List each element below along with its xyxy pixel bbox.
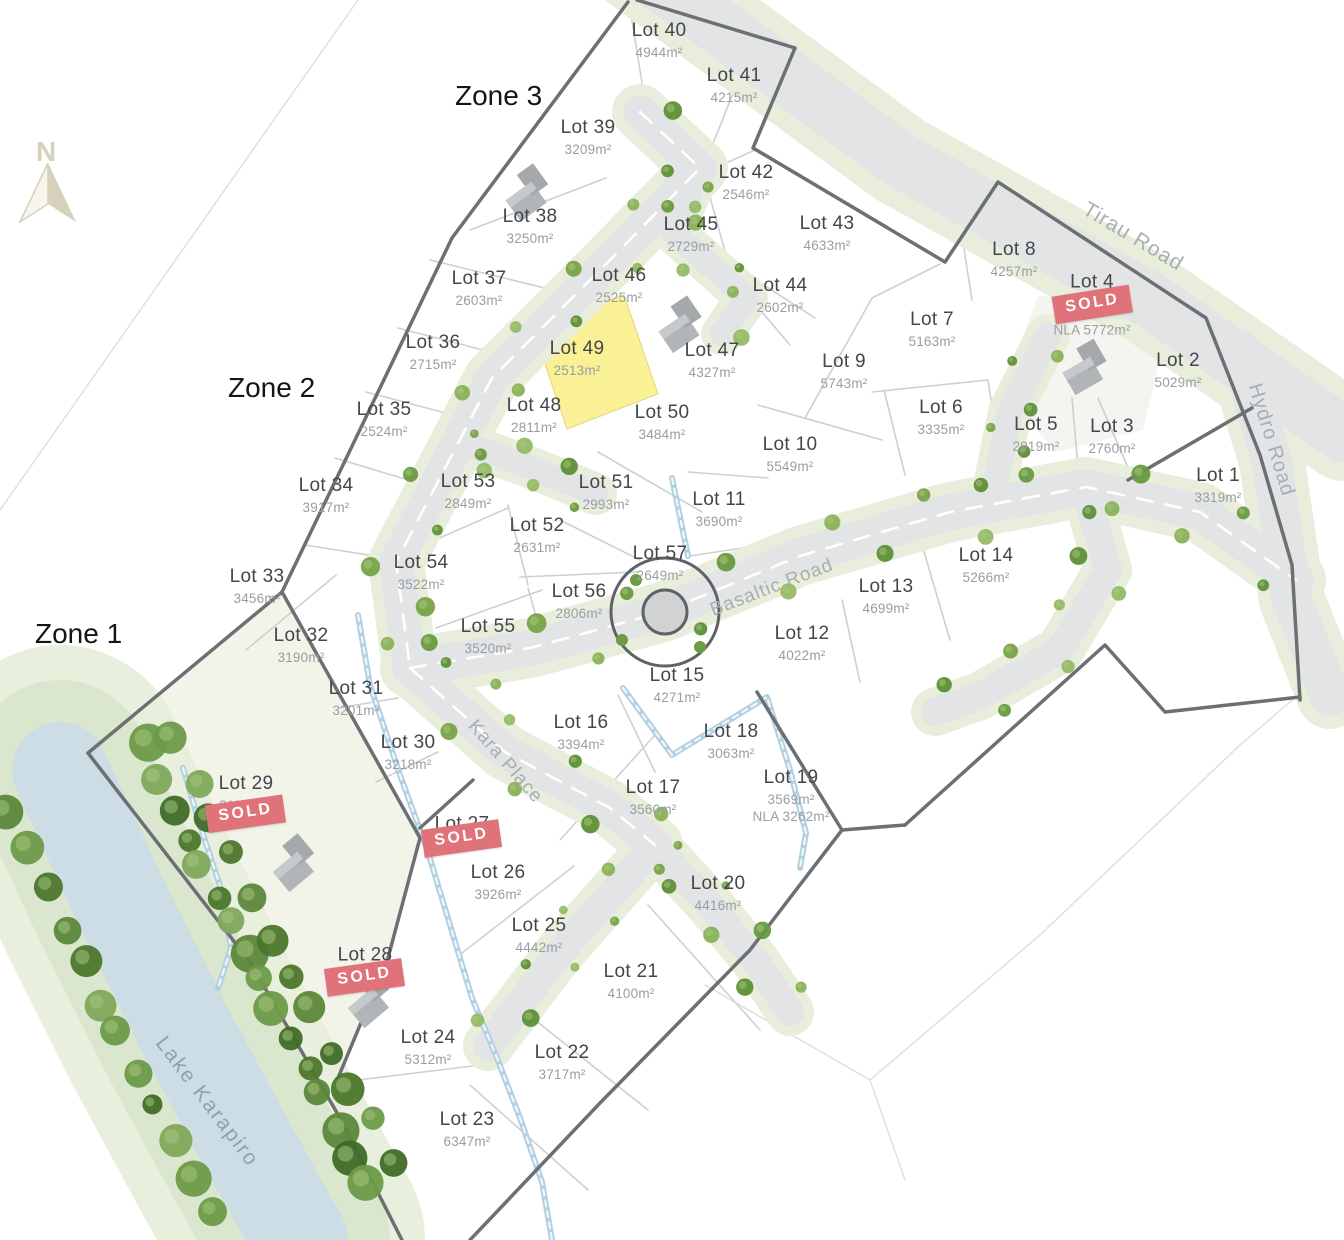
lot-number: Lot 17 — [626, 776, 681, 801]
lot-label-12[interactable]: Lot 124022m² — [775, 622, 830, 664]
lot-label-13[interactable]: Lot 134699m² — [859, 575, 914, 617]
tree-icon — [592, 652, 604, 664]
lot-label-51[interactable]: Lot 512993m² — [579, 471, 634, 513]
lot-number: Lot 55 — [461, 615, 516, 640]
lot-area: 5266m² — [959, 568, 1014, 586]
tree-icon — [100, 1016, 130, 1046]
lot-label-18[interactable]: Lot 183063m² — [704, 720, 759, 762]
lot-area: 2919m² — [1013, 437, 1060, 455]
tree-icon — [320, 1042, 343, 1065]
lot-area: 3209m² — [561, 140, 616, 158]
tree-icon — [1237, 506, 1250, 519]
tree-icon — [620, 587, 633, 600]
lot-number: Lot 3 — [1089, 415, 1136, 440]
tree-icon — [432, 525, 443, 536]
lot-net-lettable-area: NLA 5772m² — [1053, 321, 1130, 339]
tree-icon — [299, 1056, 323, 1080]
lot-number: Lot 14 — [959, 544, 1014, 569]
tree-icon — [403, 467, 418, 482]
lot-area: 3190m² — [274, 648, 329, 666]
lot-number: Lot 10 — [763, 433, 818, 458]
lot-label-50[interactable]: Lot 503484m² — [635, 401, 690, 443]
lot-area: 4327m² — [685, 363, 740, 381]
lot-number: Lot 18 — [704, 720, 759, 745]
lot-label-53[interactable]: Lot 532849m² — [441, 470, 496, 512]
lot-label-35[interactable]: Lot 352524m² — [357, 398, 412, 440]
tree-icon — [736, 978, 753, 995]
tree-icon — [182, 850, 211, 879]
lot-number: Lot 9 — [821, 350, 868, 375]
tree-icon — [627, 199, 639, 211]
lot-area: 2525m² — [592, 288, 647, 306]
tree-icon — [1007, 356, 1017, 366]
lot-label-44[interactable]: Lot 442602m² — [753, 274, 808, 316]
lot-label-55[interactable]: Lot 553520m² — [461, 615, 516, 657]
lot-area: 4215m² — [707, 88, 762, 106]
tree-icon — [662, 879, 677, 894]
lot-label-32[interactable]: Lot 323190m² — [274, 624, 329, 666]
tree-icon — [664, 101, 683, 120]
lot-label-25[interactable]: Lot 254442m² — [512, 914, 567, 956]
tree-icon — [142, 1094, 162, 1114]
lot-number: Lot 32 — [274, 624, 329, 649]
lot-label-10[interactable]: Lot 105549m² — [763, 433, 818, 475]
lot-number: Lot 21 — [604, 960, 659, 985]
lot-area: 2715m² — [406, 355, 461, 373]
lot-label-57[interactable]: Lot 572649m² — [633, 542, 688, 584]
lot-number: Lot 49 — [550, 337, 605, 362]
tree-icon — [470, 429, 479, 438]
lot-area: 2811m² — [507, 418, 562, 436]
lot-label-24[interactable]: Lot 245312m² — [401, 1026, 456, 1068]
tree-icon — [986, 423, 995, 432]
lot-area: 3690m² — [692, 512, 745, 530]
tree-icon — [654, 864, 665, 875]
tree-icon — [218, 907, 245, 934]
lot-area: 3560m² — [626, 800, 681, 818]
lot-area: 4271m² — [650, 688, 705, 706]
tree-icon — [1051, 350, 1064, 363]
lot-label-7[interactable]: Lot 75163m² — [909, 308, 956, 350]
lot-label-37[interactable]: Lot 372603m² — [452, 267, 507, 309]
tree-icon — [1054, 599, 1065, 610]
tree-icon — [527, 613, 547, 633]
lot-number: Lot 37 — [452, 267, 507, 292]
tree-icon — [998, 704, 1011, 717]
tree-icon — [522, 1009, 540, 1027]
lot-label-47[interactable]: Lot 474327m² — [685, 339, 740, 381]
lot-number: Lot 24 — [401, 1026, 456, 1051]
lot-area: 3520m² — [461, 639, 516, 657]
tree-icon — [455, 385, 471, 401]
tree-icon — [176, 1161, 212, 1197]
tree-icon — [1131, 465, 1150, 484]
tree-icon — [441, 657, 452, 668]
tree-icon — [141, 764, 172, 795]
lot-area: 2546m² — [719, 185, 774, 203]
lot-label-3[interactable]: Lot 32760m² — [1089, 415, 1136, 457]
lot-number: Lot 46 — [592, 264, 647, 289]
lot-number: Lot 35 — [357, 398, 412, 423]
lot-area: 3569m² — [752, 791, 829, 809]
tree-icon — [186, 770, 214, 798]
lot-number: Lot 8 — [991, 238, 1038, 263]
lot-label-56[interactable]: Lot 562806m² — [552, 580, 607, 622]
tree-icon — [475, 448, 487, 460]
tree-icon — [1257, 579, 1269, 591]
tree-icon — [440, 723, 457, 740]
lot-area: 3394m² — [554, 735, 609, 753]
tree-icon — [516, 438, 532, 454]
tree-icon — [936, 677, 951, 692]
lot-number: Lot 6 — [918, 396, 965, 421]
lot-area: 3250m² — [503, 229, 558, 247]
tree-icon — [154, 721, 186, 753]
tree-icon — [689, 201, 701, 213]
lot-number: Lot 44 — [753, 274, 808, 299]
lot-area: 2631m² — [510, 538, 565, 556]
lot-label-8[interactable]: Lot 84257m² — [991, 238, 1038, 280]
tree-icon — [471, 1014, 484, 1027]
lot-label-2[interactable]: Lot 25029m² — [1155, 349, 1202, 391]
lot-number: Lot 48 — [507, 394, 562, 419]
lot-area: 6347m² — [440, 1132, 495, 1150]
tree-icon — [160, 796, 190, 826]
lot-number: Lot 7 — [909, 308, 956, 333]
tree-icon — [610, 917, 619, 926]
lot-area: 3335m² — [918, 420, 965, 438]
lot-number: Lot 16 — [554, 711, 609, 736]
lot-label-30[interactable]: Lot 303218m² — [381, 731, 436, 773]
lot-label-33[interactable]: Lot 333456m² — [230, 565, 285, 607]
lot-area: 3456m² — [230, 589, 285, 607]
lot-number: Lot 23 — [440, 1108, 495, 1133]
tree-icon — [570, 315, 582, 327]
lot-number: Lot 38 — [503, 205, 558, 230]
lot-area: 3063m² — [704, 744, 759, 762]
lot-area: 5743m² — [821, 374, 868, 392]
tree-icon — [717, 553, 736, 572]
lot-label-19[interactable]: Lot 193569m²NLA 3262m² — [752, 766, 829, 826]
tree-icon — [416, 597, 435, 616]
tree-icon — [510, 321, 522, 333]
tree-icon — [570, 963, 579, 972]
lot-number: Lot 34 — [299, 474, 354, 499]
lot-label-48[interactable]: Lot 482811m² — [507, 394, 562, 436]
lot-label-36[interactable]: Lot 362715m² — [406, 331, 461, 373]
tree-icon — [253, 991, 288, 1026]
tree-icon — [1174, 528, 1189, 543]
map-graphics — [0, 0, 1344, 1240]
tree-icon — [279, 965, 304, 990]
tree-icon — [694, 622, 707, 635]
lot-number: Lot 36 — [406, 331, 461, 356]
tree-icon — [727, 286, 739, 298]
lot-area: 2849m² — [441, 494, 496, 512]
lot-label-31[interactable]: Lot 313201m² — [329, 677, 384, 719]
lot-number: Lot 57 — [633, 542, 688, 567]
lot-label-9[interactable]: Lot 95743m² — [821, 350, 868, 392]
tree-icon — [257, 925, 289, 957]
tree-icon — [34, 872, 63, 901]
tree-icon — [178, 829, 201, 852]
lot-net-lettable-area: NLA 3262m² — [752, 808, 829, 826]
tree-icon — [1082, 505, 1096, 519]
tree-icon — [347, 1165, 383, 1201]
lot-area: 4442m² — [512, 938, 567, 956]
tree-icon — [361, 557, 380, 576]
lot-label-5[interactable]: Lot 52919m² — [1013, 413, 1060, 455]
tree-icon — [661, 200, 674, 213]
lot-area: 4257m² — [991, 262, 1038, 280]
tree-icon — [380, 1149, 408, 1177]
tree-icon — [10, 831, 44, 865]
lot-area: 2513m² — [550, 361, 605, 379]
lot-label-22[interactable]: Lot 223717m² — [535, 1041, 590, 1083]
tree-icon — [293, 991, 325, 1023]
lot-label-6[interactable]: Lot 63335m² — [918, 396, 965, 438]
lot-label-15[interactable]: Lot 154271m² — [650, 664, 705, 706]
tree-icon — [159, 1124, 192, 1157]
lot-number: Lot 5 — [1013, 413, 1060, 438]
lot-number: Lot 29 — [219, 772, 274, 797]
lot-label-40[interactable]: Lot 404944m² — [632, 19, 687, 61]
lot-number: Lot 50 — [635, 401, 690, 426]
subdivision-map: Lot 13319m²Lot 25029m²Lot 32760m²Lot 4SO… — [0, 0, 1344, 1240]
lot-area: 5312m² — [401, 1050, 456, 1068]
lot-number: Lot 42 — [719, 161, 774, 186]
tree-icon — [703, 182, 714, 193]
tree-icon — [421, 634, 438, 651]
lot-number: Lot 26 — [471, 861, 526, 886]
lot-area: 2603m² — [452, 291, 507, 309]
lot-label-39[interactable]: Lot 393209m² — [561, 116, 616, 158]
tree-icon — [490, 679, 501, 690]
tree-icon — [1003, 644, 1018, 659]
lot-number: Lot 39 — [561, 116, 616, 141]
lot-number: Lot 43 — [800, 212, 855, 237]
tree-icon — [508, 782, 522, 796]
lot-label-29[interactable]: Lot 2921190m²SOLD — [219, 772, 274, 814]
lot-label-52[interactable]: Lot 522631m² — [510, 514, 565, 556]
lot-area: 4633m² — [800, 236, 855, 254]
lot-number: Lot 1 — [1195, 464, 1242, 489]
lot-label-42[interactable]: Lot 422546m² — [719, 161, 774, 203]
lot-label-27[interactable]: Lot 27SOLD — [435, 812, 490, 837]
tree-icon — [1019, 467, 1035, 483]
lot-area: 5029m² — [1155, 373, 1202, 391]
lot-area: 2729m² — [664, 237, 719, 255]
lot-number: Lot 22 — [535, 1041, 590, 1066]
lot-label-16[interactable]: Lot 163394m² — [554, 711, 609, 753]
tree-icon — [1070, 547, 1088, 565]
lot-area: 2602m² — [753, 298, 808, 316]
tree-icon — [219, 840, 243, 864]
lot-area: 2524m² — [357, 422, 412, 440]
lot-number: Lot 20 — [691, 872, 746, 897]
tree-icon — [796, 982, 807, 993]
lot-label-46[interactable]: Lot 462525m² — [592, 264, 647, 306]
lot-area: 3218m² — [381, 755, 436, 773]
lot-label-49[interactable]: Lot 492513m² — [550, 337, 605, 379]
lot-number: Lot 53 — [441, 470, 496, 495]
lot-label-26[interactable]: Lot 263926m² — [471, 861, 526, 903]
tree-icon — [602, 863, 615, 876]
lot-label-11[interactable]: Lot 113690m² — [692, 488, 745, 530]
tree-icon — [527, 479, 539, 491]
lot-label-43[interactable]: Lot 434633m² — [800, 212, 855, 254]
tree-icon — [561, 458, 578, 475]
lot-number: Lot 47 — [685, 339, 740, 364]
lot-number: Lot 52 — [510, 514, 565, 539]
lot-label-20[interactable]: Lot 204416m² — [691, 872, 746, 914]
tree-icon — [824, 514, 840, 530]
lot-label-41[interactable]: Lot 414215m² — [707, 64, 762, 106]
tree-icon — [780, 583, 796, 599]
tree-icon — [198, 1197, 227, 1226]
lot-label-17[interactable]: Lot 173560m² — [626, 776, 681, 818]
lot-number: Lot 40 — [632, 19, 687, 44]
lot-label-14[interactable]: Lot 145266m² — [959, 544, 1014, 586]
lot-area: 5163m² — [909, 332, 956, 350]
lot-number: Lot 25 — [512, 914, 567, 939]
lot-area: 2649m² — [633, 566, 688, 584]
lot-number: Lot 15 — [650, 664, 705, 689]
lot-area: 4022m² — [775, 646, 830, 664]
lot-number: Lot 19 — [752, 766, 829, 791]
lot-area: 2806m² — [552, 604, 607, 622]
lot-area: 3717m² — [535, 1065, 590, 1083]
tree-icon — [978, 529, 994, 545]
lot-area: 4416m² — [691, 896, 746, 914]
tree-icon — [279, 1026, 303, 1050]
tree-icon — [331, 1072, 365, 1106]
lot-number: Lot 56 — [552, 580, 607, 605]
north-compass-icon — [20, 163, 76, 222]
tree-icon — [304, 1079, 330, 1105]
tree-icon — [1111, 586, 1126, 601]
tree-icon — [676, 263, 689, 276]
lot-area: 5549m² — [763, 457, 818, 475]
lot-area: 4699m² — [859, 599, 914, 617]
tree-icon — [974, 478, 988, 492]
tree-icon — [581, 815, 599, 833]
tree-icon — [1061, 660, 1074, 673]
lot-area: 4100m² — [604, 984, 659, 1002]
lot-area: 3926m² — [471, 885, 526, 903]
lot-number: Lot 33 — [230, 565, 285, 590]
lot-number: Lot 31 — [329, 677, 384, 702]
lot-number: Lot 11 — [692, 488, 745, 513]
lot-area: 4944m² — [632, 43, 687, 61]
tree-icon — [381, 637, 395, 651]
tree-icon — [124, 1060, 152, 1088]
tree-icon — [674, 841, 683, 850]
tree-icon — [504, 714, 515, 725]
tree-icon — [361, 1106, 384, 1129]
tree-icon — [754, 922, 772, 940]
lot-number: Lot 41 — [707, 64, 762, 89]
lot-number: Lot 54 — [394, 551, 449, 576]
lot-number: Lot 45 — [664, 213, 719, 238]
lot-label-34[interactable]: Lot 343917m² — [299, 474, 354, 516]
lot-label-38[interactable]: Lot 383250m² — [503, 205, 558, 247]
tree-icon — [661, 165, 674, 178]
lot-number: Lot 30 — [381, 731, 436, 756]
lot-label-21[interactable]: Lot 214100m² — [604, 960, 659, 1002]
tree-icon — [735, 263, 744, 272]
tree-icon — [70, 945, 102, 977]
lot-label-54[interactable]: Lot 543522m² — [394, 551, 449, 593]
lot-number: Lot 51 — [579, 471, 634, 496]
lot-area: 3201m² — [329, 701, 384, 719]
lot-area: 2760m² — [1089, 439, 1136, 457]
tree-icon — [703, 927, 719, 943]
lot-number: Lot 12 — [775, 622, 830, 647]
lot-label-4[interactable]: Lot 4SOLDNLA 5772m² — [1053, 270, 1130, 338]
tree-icon — [208, 887, 232, 911]
tree-icon — [521, 959, 531, 969]
tree-icon — [238, 883, 267, 912]
tree-icon — [54, 917, 82, 945]
lot-area: 3522m² — [394, 575, 449, 593]
lot-number: Lot 13 — [859, 575, 914, 600]
tree-icon — [569, 755, 582, 768]
lot-label-23[interactable]: Lot 236347m² — [440, 1108, 495, 1150]
tree-icon — [877, 545, 894, 562]
tree-icon — [246, 965, 272, 991]
lot-label-1[interactable]: Lot 13319m² — [1195, 464, 1242, 506]
lot-area: 3917m² — [299, 498, 354, 516]
lot-area: 2993m² — [579, 495, 634, 513]
lot-area: 3319m² — [1195, 488, 1242, 506]
lot-number: Lot 2 — [1155, 349, 1202, 374]
tree-icon — [917, 488, 930, 501]
tree-icon — [1105, 501, 1120, 516]
lot-label-45[interactable]: Lot 452729m² — [664, 213, 719, 255]
lot-label-28[interactable]: Lot 28SOLD — [338, 943, 393, 968]
lot-area: 3484m² — [635, 425, 690, 443]
tree-icon — [566, 261, 582, 277]
